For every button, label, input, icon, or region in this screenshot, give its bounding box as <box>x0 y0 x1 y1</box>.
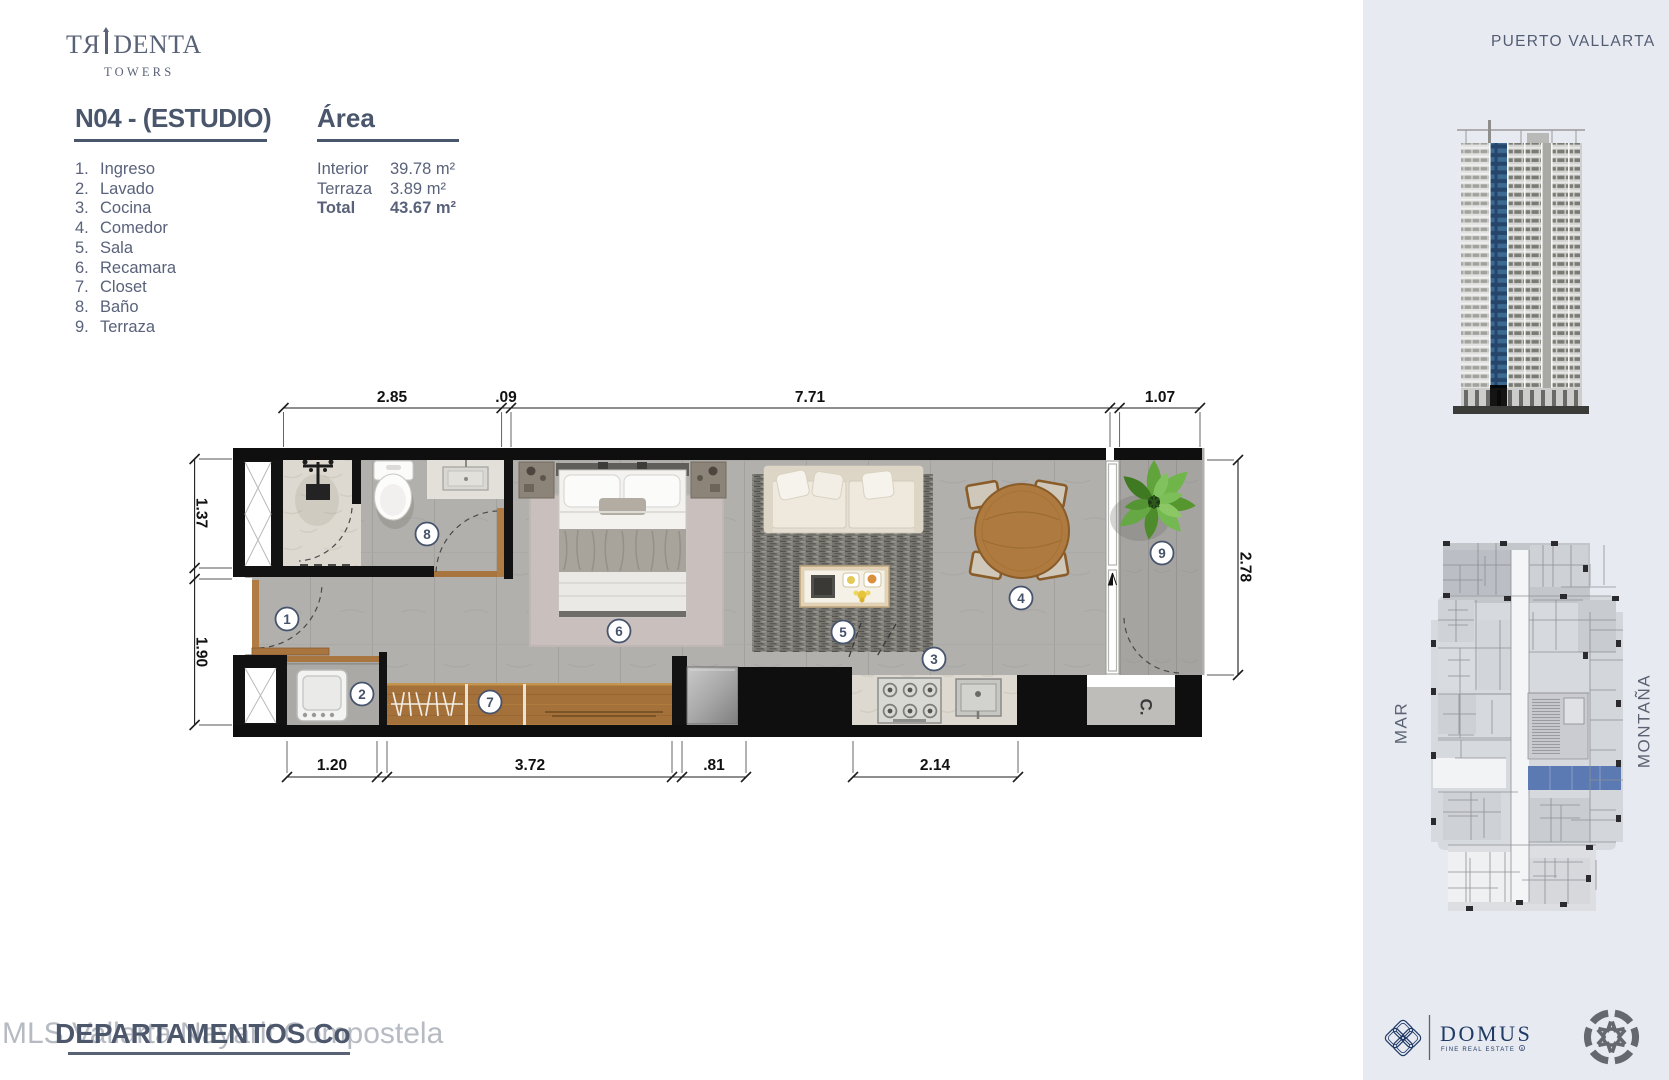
svg-text:C.: C. <box>1137 699 1156 716</box>
svg-text:3: 3 <box>930 652 938 667</box>
svg-text:.09: .09 <box>495 389 517 406</box>
svg-text:1.20: 1.20 <box>317 757 347 774</box>
svg-text:3.72: 3.72 <box>515 757 545 774</box>
svg-text:FINE REAL ESTATE: FINE REAL ESTATE <box>1441 1047 1515 1053</box>
svg-text:4: 4 <box>1017 591 1025 606</box>
svg-text:2: 2 <box>358 687 366 702</box>
svg-text:1: 1 <box>283 612 291 627</box>
svg-text:5: 5 <box>839 625 847 640</box>
svg-text:6: 6 <box>615 624 623 639</box>
svg-text:2.14: 2.14 <box>920 757 951 774</box>
svg-text:2.85: 2.85 <box>377 389 408 406</box>
svg-text:2.78: 2.78 <box>1237 552 1254 583</box>
svg-text:DOMUS: DOMUS <box>1440 1021 1532 1046</box>
svg-text:1.37: 1.37 <box>193 498 210 528</box>
svg-text:.81: .81 <box>703 757 725 774</box>
svg-text:9: 9 <box>1158 546 1166 561</box>
svg-text:MAR: MAR <box>1392 702 1411 744</box>
svg-text:7: 7 <box>486 695 494 710</box>
svg-text:MONTAÑA: MONTAÑA <box>1635 674 1654 768</box>
svg-text:7.71: 7.71 <box>795 389 826 406</box>
svg-text:8: 8 <box>423 527 431 542</box>
svg-text:1.07: 1.07 <box>1145 389 1175 406</box>
svg-text:1.90: 1.90 <box>193 637 210 667</box>
